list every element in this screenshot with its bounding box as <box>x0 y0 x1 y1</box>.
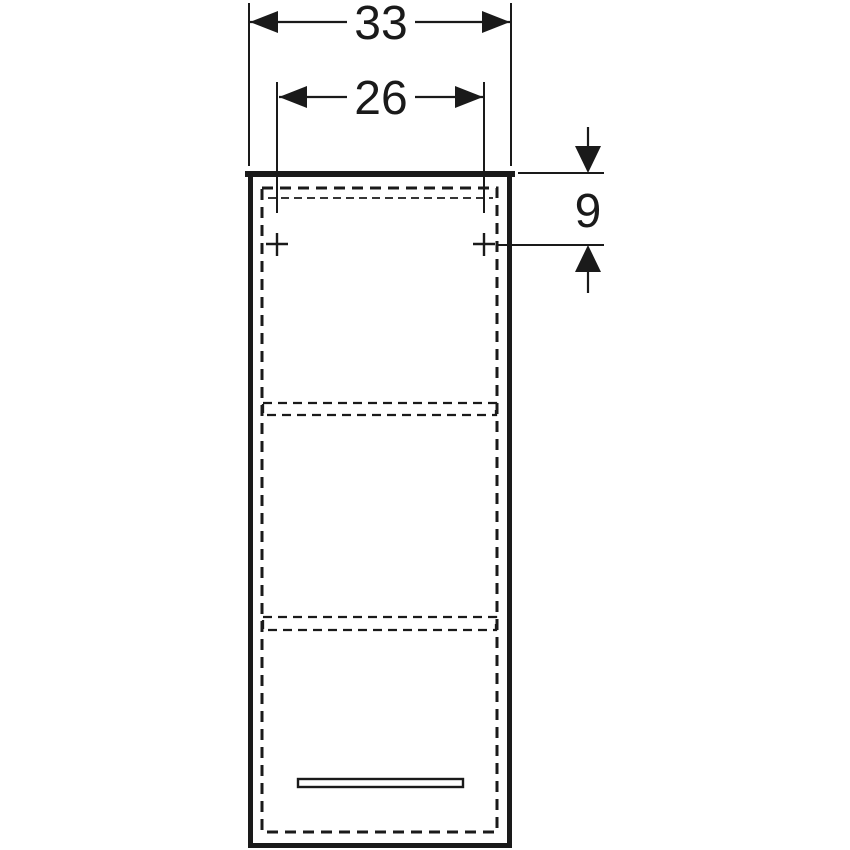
dimension-label-overall-width: 33 <box>354 0 407 50</box>
dimension-label-fixing-hole-offset: 9 <box>575 185 602 238</box>
door-handle-slot <box>298 779 463 787</box>
cabinet-right-side-panel <box>507 177 512 848</box>
cabinet-dimension-drawing: 33 26 9 <box>0 0 850 850</box>
cabinet-left-side-panel <box>248 177 253 848</box>
drawing-canvas: 33 26 9 <box>0 0 850 850</box>
drawing-background <box>0 0 850 850</box>
cabinet-top-panel <box>245 171 515 177</box>
dimension-label-fixing-hole-spacing: 26 <box>354 72 407 125</box>
cabinet-bottom-panel <box>248 843 512 848</box>
